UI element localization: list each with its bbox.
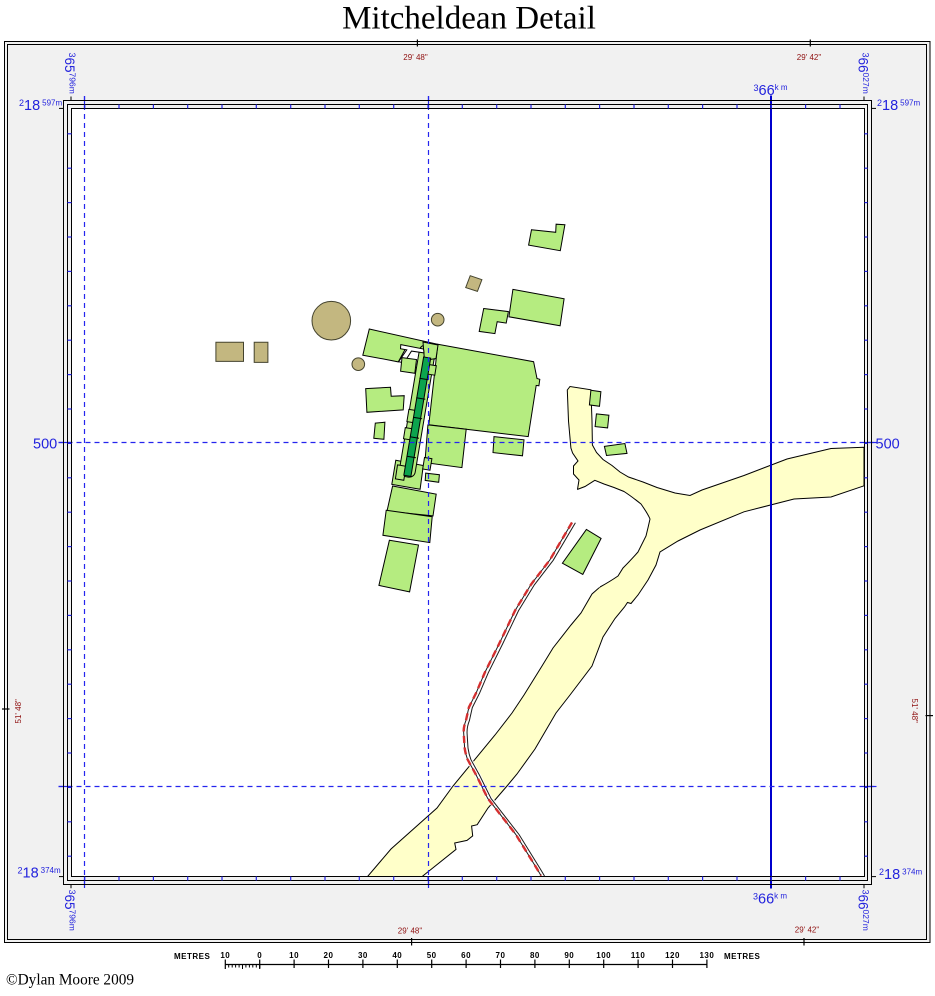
svg-text:500: 500	[876, 437, 900, 453]
svg-text:130: 130	[699, 951, 714, 960]
svg-text:10: 10	[289, 951, 299, 960]
svg-text:Mitcheldean Detail: Mitcheldean Detail	[342, 1, 596, 37]
svg-text:METRES: METRES	[174, 952, 211, 961]
svg-text:500: 500	[33, 437, 57, 453]
svg-text:80: 80	[530, 951, 540, 960]
svg-text:METRES: METRES	[724, 952, 761, 961]
svg-text:51' 48": 51' 48"	[14, 699, 23, 724]
svg-text:90: 90	[564, 951, 574, 960]
svg-text:110: 110	[631, 951, 645, 960]
svg-text:60: 60	[461, 951, 471, 960]
svg-text:100: 100	[596, 951, 611, 960]
svg-text:29' 42": 29' 42"	[797, 53, 822, 62]
svg-text:10: 10	[220, 951, 230, 960]
svg-text:70: 70	[496, 951, 506, 960]
svg-text:©Dylan Moore 2009: ©Dylan Moore 2009	[6, 972, 134, 989]
svg-text:29' 42": 29' 42"	[795, 926, 820, 935]
svg-text:40: 40	[392, 951, 402, 960]
svg-text:29' 48": 29' 48"	[403, 53, 428, 62]
svg-text:0: 0	[257, 951, 262, 960]
svg-text:51' 48": 51' 48"	[910, 699, 919, 724]
svg-text:120: 120	[665, 951, 680, 960]
svg-text:20: 20	[324, 951, 334, 960]
svg-text:29' 48": 29' 48"	[398, 927, 423, 936]
svg-text:50: 50	[427, 951, 437, 960]
svg-text:30: 30	[358, 951, 368, 960]
